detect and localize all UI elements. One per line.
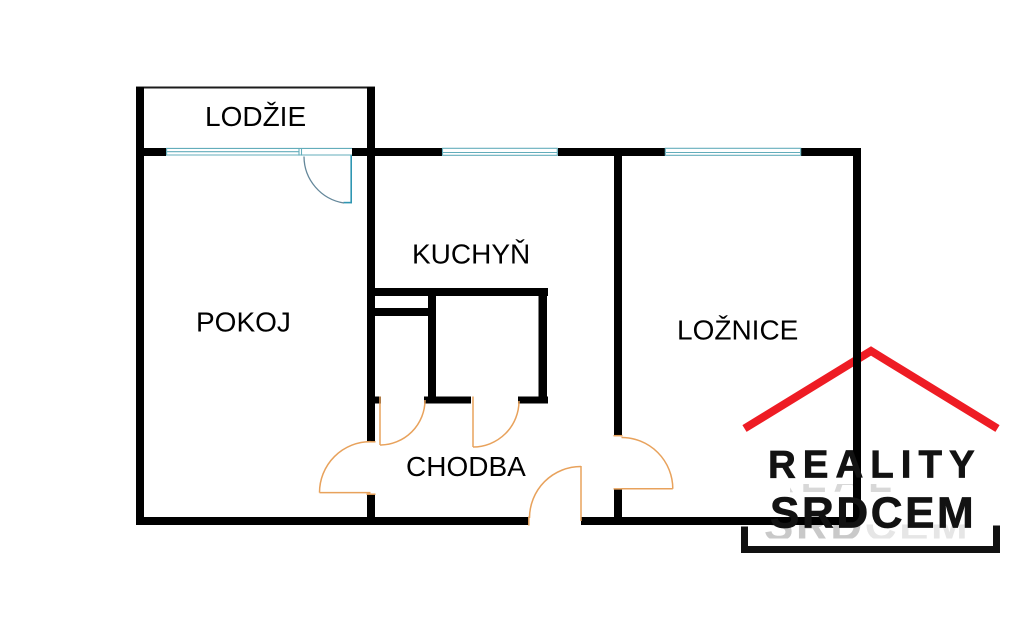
- svg-text:LOŽNICE: LOŽNICE: [677, 315, 798, 346]
- svg-text:LODŽIE: LODŽIE: [205, 101, 306, 132]
- svg-text:SRDCEM: SRDCEM: [770, 489, 976, 538]
- svg-text:POKOJ: POKOJ: [196, 307, 291, 338]
- svg-text:CHODBA: CHODBA: [406, 451, 526, 482]
- svg-text:KUCHYŇ: KUCHYŇ: [412, 239, 530, 270]
- svg-text:REALITY: REALITY: [768, 443, 982, 486]
